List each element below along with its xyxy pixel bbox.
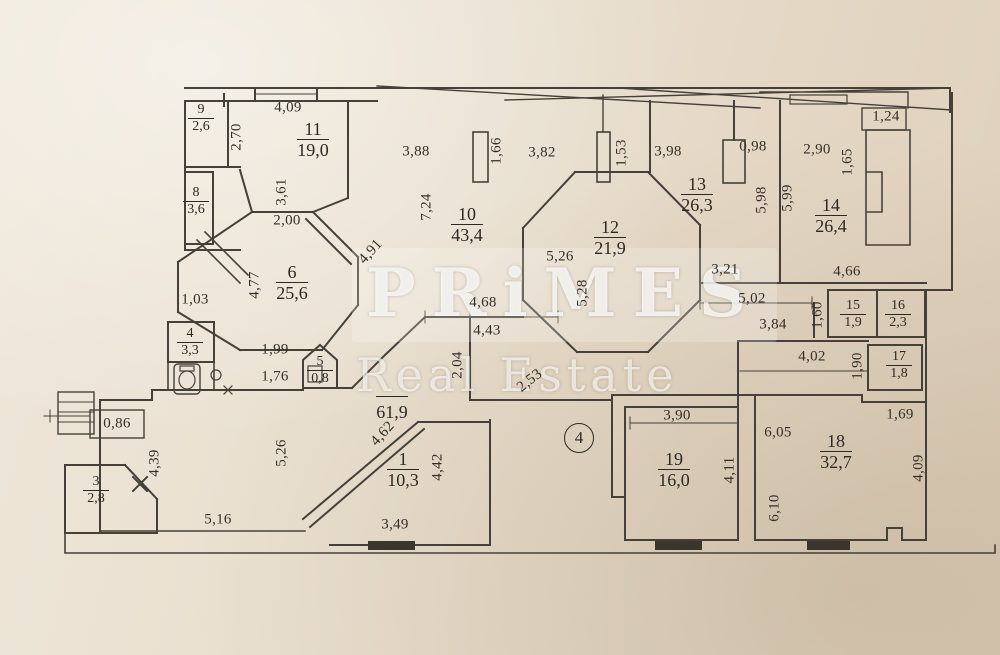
dimension-label: 3,82	[528, 146, 555, 161]
dimension-label: 1,90	[851, 352, 866, 379]
room-label-19: 1916,0	[658, 450, 690, 492]
dimension-label: 2,90	[803, 143, 830, 158]
dimension-label: 4,39	[148, 449, 163, 476]
dimension-label: 1,69	[886, 408, 913, 423]
dimension-label: 2,04	[451, 351, 466, 378]
room-label-hall: 61,9	[376, 384, 408, 424]
dimension-label: 0,98	[739, 140, 766, 155]
room-label-13: 1326,3	[681, 175, 713, 217]
room-label-12: 1221,9	[594, 218, 626, 260]
dimension-label: 1,99	[261, 343, 288, 358]
dimension-label: 5,98	[755, 186, 770, 213]
dimension-label: 1,53	[615, 139, 630, 166]
room-label-5: 50,8	[307, 352, 333, 387]
room-label-10: 1043,4	[451, 205, 483, 247]
dimension-label: 5,26	[546, 250, 573, 265]
dimension-label: 1,03	[181, 293, 208, 308]
dimension-label: 5,28	[576, 279, 591, 306]
dimension-label: 5,26	[275, 439, 290, 466]
room-label-11: 1119,0	[297, 120, 329, 162]
dimension-label: 2,00	[273, 214, 300, 229]
dimension-label: 1,66	[490, 137, 505, 164]
dimension-label: 5,02	[738, 292, 765, 307]
dimension-label: 1,76	[261, 370, 288, 385]
room-label-6: 625,6	[276, 263, 308, 305]
dimension-label: 1,65	[841, 148, 856, 175]
room-label-14: 1426,4	[815, 196, 847, 238]
dimension-label: 6,05	[764, 426, 791, 441]
dimension-label: 6,10	[768, 494, 783, 521]
room-label-1: 110,3	[387, 450, 419, 492]
floorplan-scan: PRiMES Real Estate 92,6 1119,0 83,6 1043…	[0, 0, 1000, 655]
dimension-label: 4,09	[912, 454, 927, 481]
dimension-label: 4,09	[274, 101, 301, 116]
dimension-label: 4,68	[469, 296, 496, 311]
dimension-label: 0,86	[103, 417, 130, 432]
room-label-3: 32,8	[83, 472, 109, 507]
dimension-label: 3,84	[759, 318, 786, 333]
dimension-label: 2,70	[230, 123, 245, 150]
dimension-label: 1,60	[811, 301, 826, 328]
dimension-label: 4,02	[798, 350, 825, 365]
dimension-label: 7,24	[420, 193, 435, 220]
dimension-label: 4,42	[431, 453, 446, 480]
dimension-label: 4,43	[473, 324, 500, 339]
room-label-18: 1832,7	[820, 432, 852, 474]
room-label-4: 43,3	[177, 324, 203, 359]
room-label-9: 92,6	[188, 100, 214, 135]
dimension-label: 4,11	[723, 457, 738, 484]
dimension-label: 1,24	[872, 110, 899, 125]
entrance-number-circle: 4	[564, 423, 594, 453]
dimension-label: 4,66	[833, 265, 860, 280]
dimension-label: 5,99	[781, 184, 796, 211]
dimension-label: 3,98	[654, 145, 681, 160]
dimension-label: 3,21	[711, 263, 738, 278]
room-label-8: 83,6	[183, 183, 209, 218]
dimension-label: 4,77	[248, 271, 263, 298]
dimension-label: 3,88	[402, 145, 429, 160]
dimension-label: 3,90	[663, 409, 690, 424]
room-label-16: 162,3	[885, 296, 911, 331]
dimension-label: 3,61	[275, 178, 290, 205]
room-label-17: 171,8	[886, 347, 912, 382]
room-label-15: 151,9	[840, 296, 866, 331]
dimension-label: 3,49	[381, 518, 408, 533]
dimension-label: 5,16	[204, 513, 231, 528]
